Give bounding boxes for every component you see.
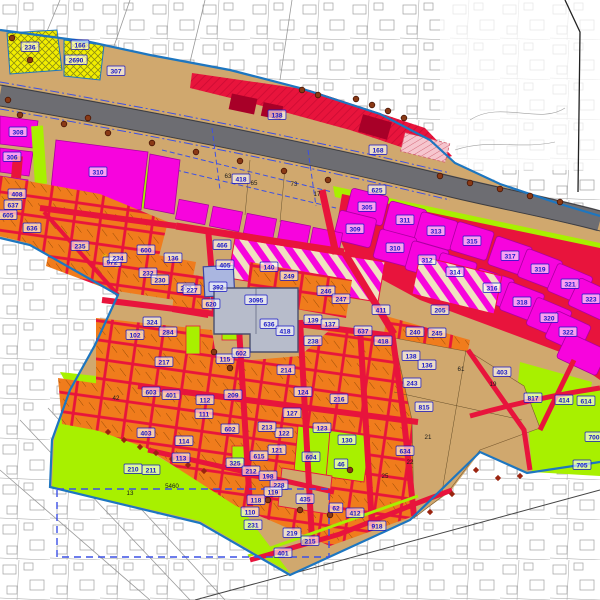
svg-text:211: 211 [146,468,157,475]
tree-icon [467,180,473,186]
svg-text:168: 168 [372,148,383,155]
parcel-label-243: 243 [403,378,421,388]
parcel-label-205: 205 [431,305,449,315]
parcel-label-405: 405 [216,260,234,270]
parcel-label-240: 240 [406,327,424,337]
svg-text:249: 249 [283,274,294,281]
svg-text:408: 408 [11,192,22,199]
parcel-label-118: 118 [247,495,265,505]
svg-text:412: 412 [349,511,360,518]
svg-text:235: 235 [74,244,85,251]
parcel-label-136: 136 [418,360,436,370]
parcel-label-2690: 2690 [65,55,87,65]
parcel-label-306: 306 [3,152,21,162]
svg-text:115: 115 [220,357,231,364]
tree-icon [369,102,375,108]
svg-text:230: 230 [154,278,165,285]
svg-text:625: 625 [371,188,382,195]
tree-icon [281,168,287,174]
parcel-label-249: 249 [280,271,298,281]
parcel-label-123: 123 [313,423,331,433]
tree-icon [227,365,233,371]
parcel-label-284: 284 [159,327,177,337]
svg-text:313: 313 [430,229,441,236]
svg-text:140: 140 [263,265,274,272]
svg-text:231: 231 [247,523,258,530]
svg-text:227: 227 [186,288,197,295]
svg-text:414: 414 [558,398,569,405]
svg-text:307: 307 [110,69,121,76]
svg-text:122: 122 [278,431,289,438]
parcel-label-602: 602 [221,424,239,434]
parcel-label-214: 214 [277,365,295,375]
svg-text:319: 319 [534,267,545,274]
svg-text:636: 636 [263,322,274,329]
tree-icon [385,108,391,114]
parcel-number-73: 73 [291,181,298,188]
parcel-label-209: 209 [224,390,242,400]
svg-text:198: 198 [262,474,273,481]
parcel-label-235: 235 [71,241,89,251]
parcel-number-42: 42 [113,395,120,402]
svg-text:411: 411 [376,308,387,315]
parcel-label-121: 121 [268,445,286,455]
parcel-label-403: 403 [493,367,511,377]
parcel-label-311: 311 [396,215,414,225]
svg-text:138: 138 [405,354,416,361]
parcel-label-418: 418 [276,326,294,336]
parcel-label-322: 322 [559,327,577,337]
svg-text:102: 102 [129,333,140,340]
svg-text:418: 418 [377,339,388,346]
svg-text:46: 46 [337,462,345,469]
parcel-label-217: 217 [155,357,173,367]
tree-icon [557,199,563,205]
tree-icon [297,507,303,513]
svg-text:318: 318 [516,300,527,307]
parcel-label-238: 238 [304,336,322,346]
parcel-label-615: 615 [250,451,268,461]
parcel-number-21: 21 [425,434,432,441]
parcel-label-219: 219 [283,528,301,538]
svg-text:114: 114 [179,439,190,446]
svg-text:166: 166 [74,43,85,50]
parcel-label-605: 605 [0,210,17,220]
svg-text:435: 435 [299,497,310,504]
svg-text:605: 605 [2,213,13,220]
svg-text:214: 214 [280,368,291,375]
parcel-label-130: 130 [338,435,356,445]
parcel-label-614: 614 [577,396,595,406]
parcel-label-213: 213 [258,422,276,432]
svg-text:323: 323 [585,297,596,304]
parcel-label-168: 168 [369,145,387,155]
tree-icon [437,173,443,179]
parcel-label-604: 604 [302,452,320,462]
parcel-label-323: 323 [582,294,600,304]
tree-icon [211,349,217,355]
parcel-number-22: 22 [407,459,414,466]
parcel-label-700: 700 [585,432,600,442]
parcel-label-316: 316 [483,283,501,293]
svg-text:246: 246 [320,289,331,296]
parcel-label-320: 320 [540,313,558,323]
parcel-label-305: 305 [358,202,376,212]
parcel-label-124: 124 [294,387,312,397]
tree-icon [5,97,11,103]
svg-text:322: 322 [562,330,573,337]
parcel-label-815: 815 [415,402,433,412]
tree-icon [325,177,331,183]
parcel-label-705: 705 [573,460,591,470]
parcel-label-637: 637 [4,200,22,210]
parcel-label-231: 231 [244,520,262,530]
svg-text:110: 110 [245,510,256,517]
parcel-label-113: 113 [172,453,190,463]
tree-icon [315,92,321,98]
svg-text:466: 466 [216,243,227,250]
svg-text:324: 324 [146,320,157,327]
svg-text:62: 62 [332,506,340,513]
parcel-label-3095: 3095 [245,295,267,305]
parcel-label-212: 212 [242,466,260,476]
svg-text:112: 112 [200,398,211,405]
svg-text:637: 637 [7,203,18,210]
parcel-label-401: 401 [162,390,180,400]
parcel-label-247: 247 [332,294,350,304]
svg-text:139: 139 [307,318,318,325]
parcel-label-138: 138 [268,110,286,120]
parcel-label-236: 236 [21,42,39,52]
parcel-label-918: 918 [368,521,386,531]
parcel-label-403: 403 [137,428,155,438]
parcel-label-308: 308 [9,127,27,137]
parcel-label-122: 122 [275,428,293,438]
tree-icon [149,140,155,146]
svg-text:325: 325 [229,461,240,468]
parcel-label-634: 634 [396,446,414,456]
svg-text:316: 316 [486,286,497,293]
svg-text:615: 615 [253,454,264,461]
parcel-label-418: 418 [232,174,250,184]
parcel-label-466: 466 [213,240,231,250]
svg-text:245: 245 [431,331,442,338]
parcel-label-230: 230 [151,275,169,285]
parcel-label-110: 110 [241,507,259,517]
svg-text:602: 602 [235,351,246,358]
svg-text:614: 614 [580,399,591,406]
parcel-label-325: 325 [226,458,244,468]
parcel-label-625: 625 [368,185,386,195]
parcel-label-600: 600 [137,245,155,255]
tree-icon [299,87,305,93]
parcel-label-139: 139 [304,315,322,325]
parcel-label-307: 307 [107,66,125,76]
parcel-label-418: 418 [374,336,392,346]
svg-text:136: 136 [421,363,432,370]
svg-text:212: 212 [245,469,256,476]
parcel-label-112: 112 [196,395,214,405]
svg-text:240: 240 [409,330,420,337]
parcel-label-114: 114 [175,436,193,446]
parcel-label-309: 309 [346,224,364,234]
parcel-number-25: 25 [382,473,389,480]
parcel-label-62: 62 [329,503,343,513]
parcel-label-312: 312 [418,255,436,265]
svg-text:620: 620 [205,302,216,309]
parcel-label-137: 137 [321,319,339,329]
svg-text:817: 817 [527,396,538,403]
svg-text:637: 637 [357,329,368,336]
svg-text:311: 311 [400,218,411,225]
svg-text:3095: 3095 [249,298,264,305]
parcel-label-412: 412 [346,508,364,518]
parcel-label-119: 119 [264,487,282,497]
svg-text:418: 418 [279,329,290,336]
svg-text:403: 403 [140,431,151,438]
parcel-label-324: 324 [143,317,161,327]
parcel-label-166: 166 [71,40,89,50]
svg-text:121: 121 [271,448,282,455]
svg-text:636: 636 [26,226,37,233]
parcel-label-310: 310 [89,167,107,177]
tree-icon [401,115,407,121]
tree-icon [193,149,199,155]
tree-icon [327,512,333,518]
svg-text:401: 401 [277,551,288,558]
tree-icon [27,57,33,63]
svg-text:217: 217 [158,360,169,367]
svg-text:705: 705 [576,463,587,470]
svg-text:205: 205 [434,308,445,315]
tree-icon [105,130,111,136]
svg-text:284: 284 [162,330,173,337]
svg-text:604: 604 [305,455,316,462]
svg-text:210: 210 [127,467,138,474]
svg-text:602: 602 [224,427,235,434]
svg-text:308: 308 [12,130,23,137]
parcel-label-408: 408 [8,189,26,199]
svg-text:247: 247 [335,297,346,304]
svg-text:815: 815 [418,405,429,412]
parcel-label-127: 127 [283,408,301,418]
parcel-label-111: 111 [195,409,213,419]
parcel-label-198: 198 [259,471,277,481]
svg-text:309: 309 [349,227,360,234]
svg-text:403: 403 [496,370,507,377]
parcel-label-637: 637 [354,326,372,336]
svg-text:215: 215 [304,539,315,546]
parcel-label-319: 319 [531,264,549,274]
svg-text:405: 405 [219,263,230,270]
parcel-label-215: 215 [301,536,319,546]
parcel-label-210: 210 [124,464,142,474]
parcel-label-216: 216 [330,394,348,404]
parcel-number-19: 19 [490,381,497,388]
parcel-label-401: 401 [274,548,292,558]
svg-text:634: 634 [399,449,410,456]
parcel-number-65: 65 [251,180,258,187]
parcel-label-318: 318 [513,297,531,307]
parcel-label-227: 227 [183,285,201,295]
parcel-label-817: 817 [524,393,542,403]
svg-text:312: 312 [421,258,432,265]
svg-text:315: 315 [466,239,477,246]
svg-text:209: 209 [227,393,238,400]
svg-text:314: 314 [449,270,460,277]
svg-text:113: 113 [176,456,187,463]
tree-icon [9,35,15,41]
svg-text:236: 236 [24,45,35,52]
parcel-number-61: 61 [458,366,465,373]
parcel-label-636: 636 [260,319,278,329]
tree-icon [353,96,359,102]
parcel-number-13: 13 [127,490,134,497]
svg-text:306: 306 [6,155,17,162]
tree-icon [497,186,503,192]
svg-text:392: 392 [212,285,223,292]
svg-text:130: 130 [341,438,352,445]
parcel-number-63: 63 [225,173,232,180]
svg-text:401: 401 [165,393,176,400]
parcel-label-46: 46 [334,459,348,469]
parcel-label-317: 317 [501,251,519,261]
parcel-label-234: 234 [109,253,127,263]
svg-text:136: 136 [167,256,178,263]
svg-text:305: 305 [361,205,372,212]
parcel-label-602: 602 [232,348,250,358]
svg-text:119: 119 [268,490,279,497]
parcel-label-138: 138 [402,351,420,361]
parcel-label-314: 314 [446,267,464,277]
svg-text:213: 213 [261,425,272,432]
tree-icon [265,497,271,503]
tree-icon [61,121,67,127]
parcel-label-310: 310 [386,243,404,253]
parcel-label-392: 392 [209,282,227,292]
svg-text:127: 127 [286,411,297,418]
parcel-number-17: 17 [314,191,321,198]
svg-text:138: 138 [271,113,282,120]
zoning-plan-map: ✳✳✳✳ 63657317612122192513425460 16623626… [0,0,600,600]
parcel-label-414: 414 [555,395,573,405]
svg-text:2690: 2690 [69,58,84,65]
tree-icon [527,193,533,199]
parcel-label-636: 636 [23,223,41,233]
svg-text:603: 603 [145,390,156,397]
parcel-label-313: 313 [427,226,445,236]
svg-text:321: 321 [564,282,575,289]
svg-text:111: 111 [199,412,210,419]
svg-text:310: 310 [92,170,103,177]
svg-text:118: 118 [251,498,262,505]
tree-icon [17,112,23,118]
parcel-label-620: 620 [202,299,220,309]
svg-text:700: 700 [588,435,599,442]
parcel-label-140: 140 [260,262,278,272]
parcel-label-245: 245 [428,328,446,338]
svg-text:918: 918 [371,524,382,531]
svg-text:234: 234 [112,256,123,263]
svg-text:317: 317 [504,254,515,261]
svg-text:137: 137 [324,322,335,329]
parcel-label-102: 102 [126,330,144,340]
parcel-label-211: 211 [142,465,160,475]
parcel-number-5460: 5460 [165,483,179,490]
svg-text:310: 310 [389,246,400,253]
svg-text:216: 216 [333,397,344,404]
svg-text:238: 238 [307,339,318,346]
parcel-label-435: 435 [296,494,314,504]
parcel-label-115: 115 [216,354,234,364]
svg-text:243: 243 [406,381,417,388]
parcel-label-321: 321 [561,279,579,289]
svg-text:320: 320 [543,316,554,323]
svg-text:219: 219 [286,531,297,538]
svg-text:123: 123 [316,426,327,433]
svg-text:600: 600 [140,248,151,255]
svg-text:124: 124 [297,390,308,397]
parcel-label-136: 136 [164,253,182,263]
tree-icon [85,115,91,121]
parcel-label-603: 603 [142,387,160,397]
tree-icon [237,158,243,164]
parcel-label-411: 411 [372,305,390,315]
svg-text:418: 418 [235,177,246,184]
parcel-label-315: 315 [463,236,481,246]
